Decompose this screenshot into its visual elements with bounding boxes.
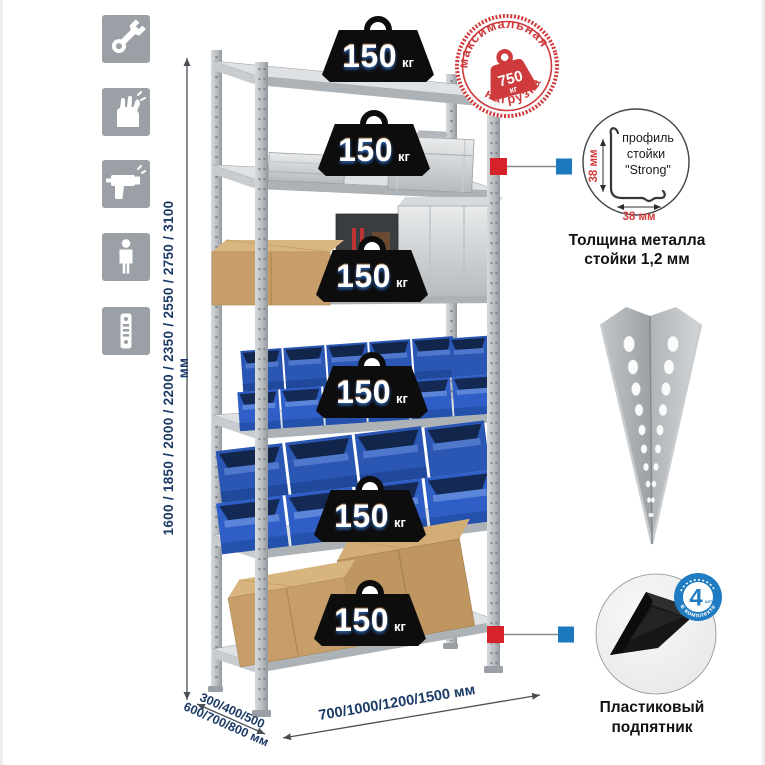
height-dimension-label: 1600 / 1850 / 2000 / 2200 / 2350 / 2550 … — [161, 198, 183, 538]
shelf-load-badge-2: 150кг — [318, 124, 430, 176]
rack-post-icon — [102, 307, 150, 355]
shelf-load-value: 150 — [334, 498, 389, 535]
sidebar-icon-person — [102, 233, 150, 281]
connector-top-red-square — [490, 158, 507, 175]
profile-label-2: стойки — [627, 147, 665, 161]
connector-bottom — [487, 626, 574, 643]
sidebar-icon-rack-post — [102, 307, 150, 355]
profile-circle: 38 мм 38 мм профиль стойки "Strong" — [583, 109, 689, 223]
metal-thickness-line1: Толщина металла — [552, 231, 722, 250]
sidebar-icon-gloves — [102, 88, 150, 136]
shelf-load-unit: кг — [394, 619, 406, 634]
profile-vertical-dim: 38 мм — [588, 149, 600, 182]
connector-top — [490, 158, 572, 175]
included-count-badge: 4 штуки в комплекте — [674, 573, 722, 621]
shelf-load-badge-4: 150кг — [316, 366, 428, 418]
product-infographic: 750 кг максимальная нагрузка 38 мм 38 мм… — [0, 0, 765, 765]
shelf-load-badge-5: 150кг — [314, 490, 426, 542]
included-count-unit: штуки — [705, 599, 719, 604]
plastic-foot-line1: Пластиковый — [567, 698, 737, 718]
shelf-load-badge-3: 150кг — [316, 250, 428, 302]
shelf-load-value: 150 — [334, 602, 389, 639]
plastic-foot-line2: подпятник — [567, 718, 737, 738]
angle-post-image — [601, 307, 701, 544]
gloves-icon — [102, 88, 150, 136]
profile-label-3: "Strong" — [625, 163, 671, 177]
shelf-load-unit: кг — [396, 391, 408, 406]
shelf-load-badge-1: 150кг — [322, 30, 434, 82]
connector-bottom-red-square — [487, 626, 504, 643]
person-icon — [102, 233, 150, 281]
profile-horizontal-dim: 38 мм — [622, 211, 655, 223]
wrench-icon — [102, 15, 150, 63]
shelf-load-unit: кг — [398, 149, 410, 164]
shelf-load-unit: кг — [402, 55, 414, 70]
shelf-load-value: 150 — [336, 374, 391, 411]
max-load-stamp: 750 кг максимальная нагрузка — [443, 2, 570, 129]
sidebar-icon-drill — [102, 160, 150, 208]
included-count-value: 4 — [689, 585, 703, 612]
rack-post-front-left — [255, 62, 268, 712]
rack-post-back-left — [211, 50, 222, 688]
shelf-load-value: 150 — [338, 132, 393, 169]
shelf-load-badge-6: 150кг — [314, 594, 426, 646]
connector-top-blue-square — [556, 159, 572, 175]
shelf-load-value: 150 — [336, 258, 391, 295]
shelf-load-unit: кг — [396, 275, 408, 290]
sidebar-icon-wrench — [102, 15, 150, 63]
shelf-load-value: 150 — [342, 38, 397, 75]
metal-thickness-caption: Толщина металла стойки 1,2 мм — [552, 231, 722, 269]
metal-thickness-line2: стойки 1,2 мм — [552, 250, 722, 269]
profile-label-1: профиль — [622, 131, 674, 145]
connector-bottom-blue-square — [558, 627, 574, 643]
shelf-load-unit: кг — [394, 515, 406, 530]
plastic-foot-caption: Пластиковый подпятник — [567, 698, 737, 738]
drill-icon — [102, 160, 150, 208]
